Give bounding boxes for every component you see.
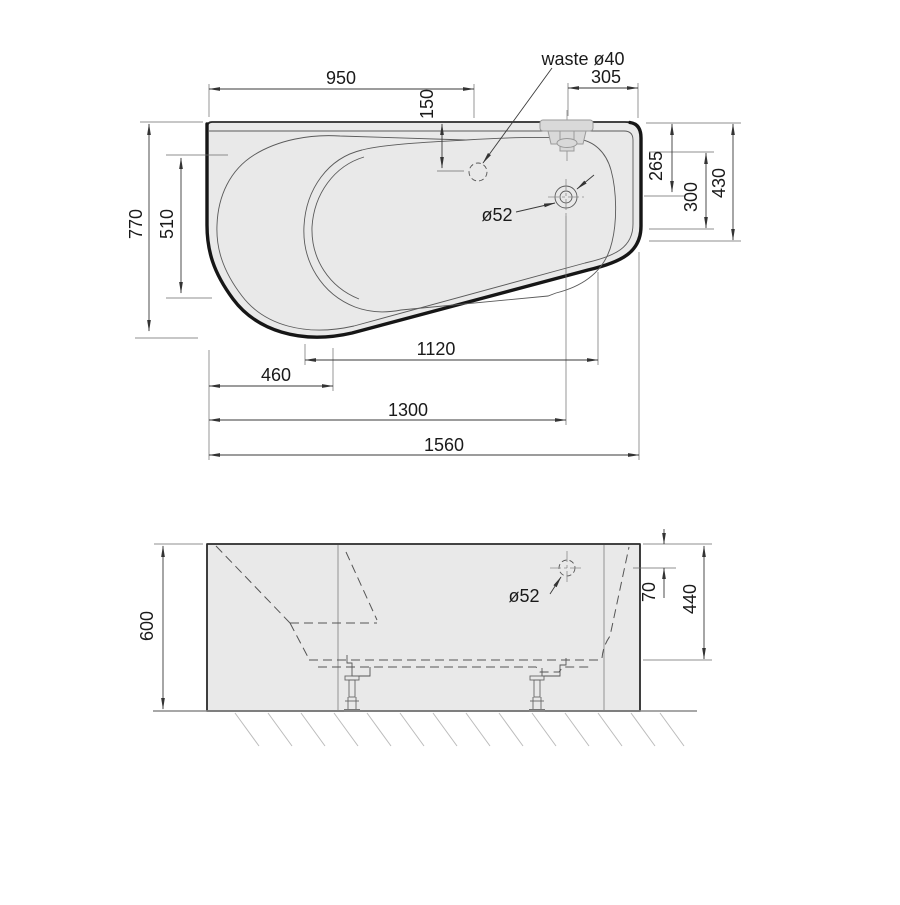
waste-callout: waste ø40 (540, 49, 624, 69)
dim-300: 300 (681, 182, 701, 212)
dim-600: 600 (137, 611, 157, 641)
dim-305: 305 (591, 67, 621, 87)
dim-1560: 1560 (424, 435, 464, 455)
dim-460: 460 (261, 365, 291, 385)
front-view: 600 ø52 70 440 (137, 529, 712, 746)
tub-top-outline (207, 122, 641, 337)
ground-hatching (235, 713, 684, 746)
dim-950: 950 (326, 68, 356, 88)
top-view: 950 305 waste ø40 150 770 510 265 300 43… (126, 49, 741, 460)
dim-430: 430 (709, 168, 729, 198)
dim-1300: 1300 (388, 400, 428, 420)
dim-770: 770 (126, 209, 146, 239)
dim-440: 440 (680, 584, 700, 614)
dim-510: 510 (157, 209, 177, 239)
dim-1120: 1120 (417, 339, 456, 359)
drawing-canvas: 950 305 waste ø40 150 770 510 265 300 43… (0, 0, 900, 900)
overflow-callout: ø52 (508, 586, 539, 606)
drain-callout: ø52 (481, 205, 512, 225)
dim-70: 70 (639, 582, 659, 602)
dim-265: 265 (646, 151, 666, 181)
dim-150: 150 (417, 89, 437, 119)
bathtub-technical-drawing: 950 305 waste ø40 150 770 510 265 300 43… (0, 0, 900, 900)
